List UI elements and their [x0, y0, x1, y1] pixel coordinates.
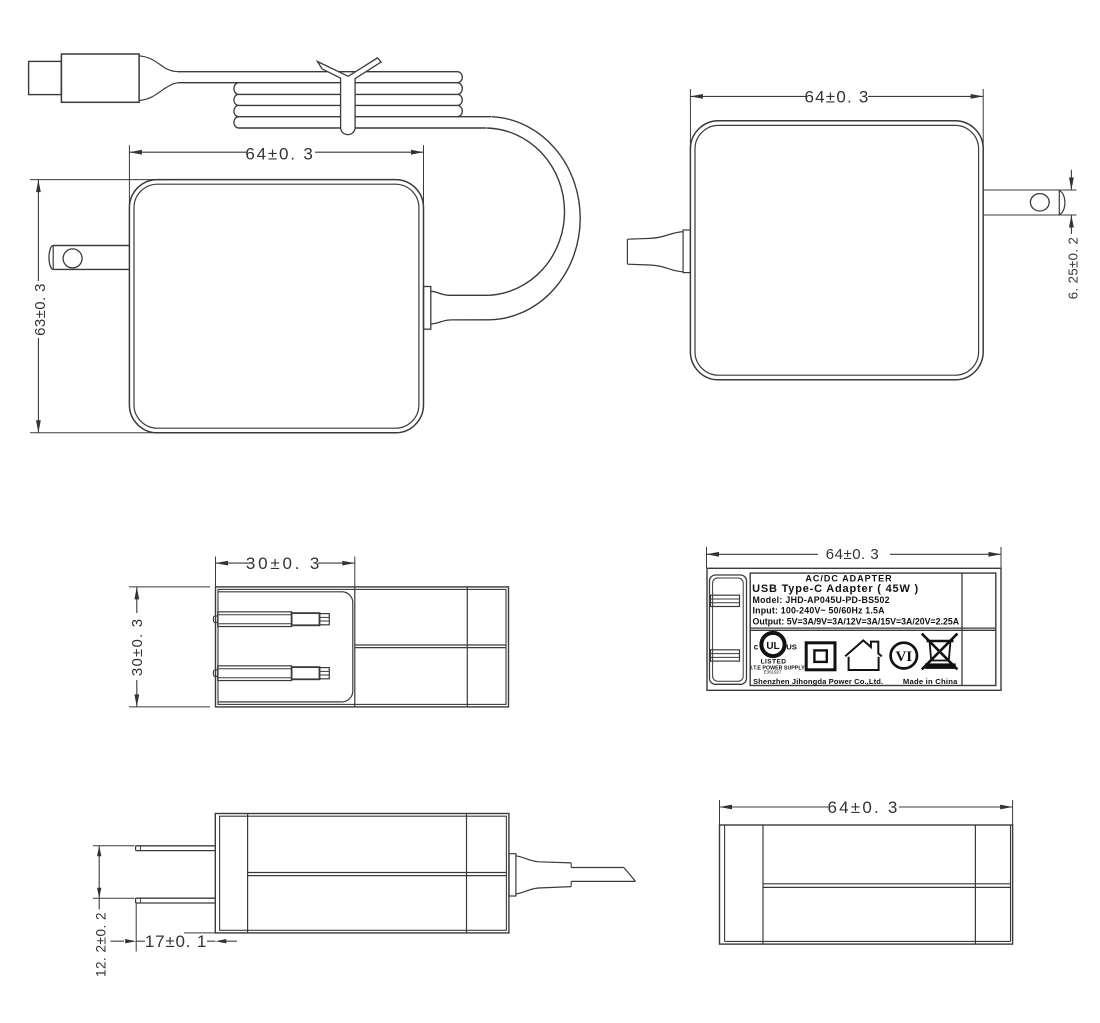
svg-text:LISTED: LISTED — [761, 658, 787, 665]
svg-text:Output: 5V=3A/9V=3A/12V=3A/15V: Output: 5V=3A/9V=3A/12V=3A/15V=3A/20V=2.… — [753, 616, 960, 626]
svg-text:30±0. 3: 30±0. 3 — [129, 618, 146, 676]
svg-text:AC/DC ADAPTER: AC/DC ADAPTER — [805, 573, 892, 583]
svg-text:64±0. 3: 64±0. 3 — [828, 798, 900, 817]
svg-text:Model: JHD-AP045U-PD-BS502: Model: JHD-AP045U-PD-BS502 — [753, 595, 890, 605]
svg-text:64±0. 3: 64±0. 3 — [826, 546, 879, 563]
svg-text:E361927: E361927 — [764, 670, 782, 675]
svg-text:Shenzhen Jihongda Power Co.,Lt: Shenzhen Jihongda Power Co.,Ltd. — [753, 677, 883, 686]
svg-text:Input: 100-240V~ 50/60Hz 1.5: Input: 100-240V~ 50/60Hz 1.5A — [753, 606, 886, 616]
svg-text:c: c — [754, 643, 759, 652]
svg-text:64±0. 3: 64±0. 3 — [805, 88, 870, 107]
svg-text:12. 2±0. 2: 12. 2±0. 2 — [93, 912, 108, 977]
svg-text:63±0. 3: 63±0. 3 — [32, 283, 49, 336]
svg-text:64±0. 3: 64±0. 3 — [245, 144, 314, 163]
svg-text:VI: VI — [895, 649, 912, 665]
svg-text:17±0. 1: 17±0. 1 — [145, 932, 207, 951]
svg-text:UL: UL — [766, 641, 779, 652]
svg-text:6. 25±0. 2: 6. 25±0. 2 — [1066, 237, 1081, 300]
svg-text:30±0. 3: 30±0. 3 — [246, 554, 322, 573]
svg-text:USB Type-C Adapter ( 45W ): USB Type-C Adapter ( 45W ) — [752, 583, 919, 595]
svg-text:US: US — [786, 643, 797, 652]
svg-text:Made in China: Made in China — [903, 677, 958, 686]
